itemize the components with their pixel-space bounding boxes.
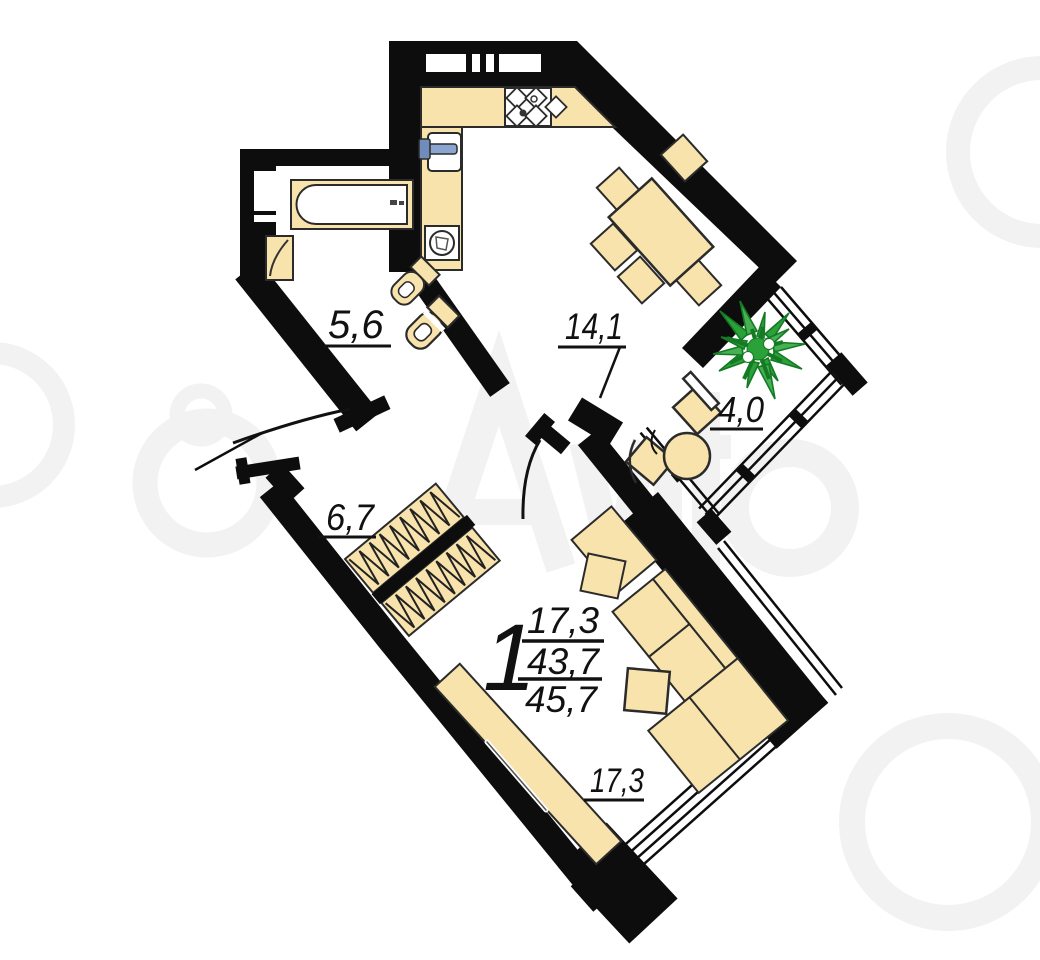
svg-text:5,6: 5,6 [328,303,384,347]
svg-text:43,7: 43,7 [527,641,600,682]
svg-text:4,0: 4,0 [718,389,764,430]
svg-text:17,3: 17,3 [590,762,644,800]
svg-text:14,1: 14,1 [565,306,623,347]
svg-text:45,7: 45,7 [525,679,598,720]
svg-text:17,3: 17,3 [527,600,599,641]
svg-text:6,7: 6,7 [326,497,375,538]
